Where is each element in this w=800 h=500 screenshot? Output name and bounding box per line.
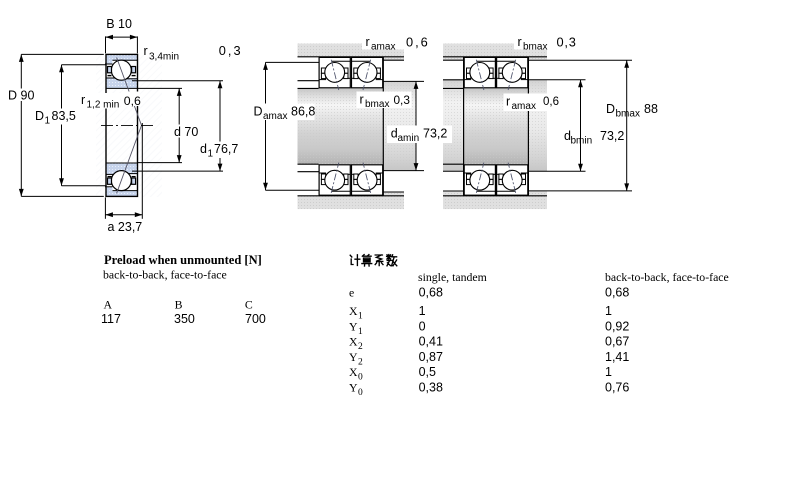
svg-text:1: 1 (358, 327, 363, 337)
svg-text:0,76: 0,76 (605, 381, 629, 395)
svg-text:0,3: 0,3 (219, 43, 243, 58)
svg-text:A: A (104, 298, 113, 312)
svg-text:r: r (360, 93, 364, 107)
svg-text:X: X (349, 335, 358, 349)
svg-text:0: 0 (358, 388, 363, 398)
svg-text:0: 0 (358, 373, 363, 383)
svg-text:0,67: 0,67 (605, 335, 629, 349)
svg-text:117: 117 (101, 312, 121, 326)
svg-text:bmin: bmin (571, 136, 593, 147)
svg-text:0,3: 0,3 (394, 93, 411, 107)
svg-text:Y: Y (349, 319, 358, 333)
svg-text:D: D (606, 102, 615, 116)
svg-text:bmax: bmax (365, 99, 389, 110)
svg-text:back-to-back, face-to-face: back-to-back, face-to-face (103, 268, 227, 282)
svg-text:1: 1 (208, 149, 214, 160)
svg-text:r: r (518, 35, 522, 49)
svg-text:D 90: D 90 (8, 89, 34, 103)
svg-text:0,68: 0,68 (605, 286, 629, 300)
svg-text:r: r (81, 93, 85, 107)
svg-text:amax: amax (512, 101, 536, 112)
svg-text:0,3: 0,3 (557, 35, 577, 50)
svg-text:1: 1 (358, 312, 363, 322)
svg-text:0,6: 0,6 (124, 94, 141, 108)
svg-text:1: 1 (605, 365, 612, 379)
svg-text:86,8: 86,8 (291, 105, 315, 119)
svg-text:B 10: B 10 (106, 17, 132, 31)
svg-text:73,2: 73,2 (600, 129, 624, 143)
svg-text:0,41: 0,41 (419, 335, 443, 349)
svg-text:a 23,7: a 23,7 (108, 220, 143, 234)
svg-text:76,7: 76,7 (214, 142, 238, 156)
svg-text:2: 2 (358, 342, 363, 352)
svg-text:700: 700 (245, 312, 266, 326)
svg-text:back-to-back, face-to-face: back-to-back, face-to-face (605, 270, 729, 284)
svg-text:D: D (254, 105, 263, 119)
svg-text:bmax: bmax (523, 42, 547, 53)
svg-text:amin: amin (398, 133, 420, 144)
svg-text:r: r (366, 35, 370, 49)
svg-text:1: 1 (605, 304, 612, 318)
svg-text:Y: Y (349, 381, 358, 395)
svg-text:C: C (245, 298, 253, 312)
svg-text:d 70: d 70 (174, 125, 198, 139)
svg-text:1,2 min: 1,2 min (87, 100, 120, 111)
svg-text:amax: amax (263, 111, 287, 122)
svg-text:0,6: 0,6 (543, 96, 559, 108)
svg-text:Preload when unmounted [N]: Preload when unmounted [N] (104, 253, 262, 267)
svg-text:73,2: 73,2 (423, 127, 447, 141)
svg-text:1: 1 (419, 304, 426, 318)
svg-text:0,5: 0,5 (419, 365, 436, 379)
svg-text:Y: Y (349, 350, 358, 364)
svg-text:350: 350 (174, 312, 195, 326)
svg-text:83,5: 83,5 (52, 109, 76, 123)
svg-text:X: X (349, 365, 358, 379)
svg-text:0,6: 0,6 (406, 35, 430, 50)
svg-text:r: r (506, 95, 510, 109)
svg-text:0,38: 0,38 (419, 381, 443, 395)
svg-text:bmax: bmax (616, 109, 640, 120)
svg-text:0,92: 0,92 (605, 319, 629, 333)
svg-text:D: D (35, 109, 44, 123)
svg-text:amax: amax (371, 42, 395, 53)
svg-text:0,68: 0,68 (419, 286, 443, 300)
svg-text:3,4min: 3,4min (149, 52, 179, 63)
svg-text:d: d (200, 142, 207, 156)
svg-text:X: X (349, 304, 358, 318)
svg-text:B: B (175, 298, 183, 312)
svg-text:r: r (144, 44, 148, 58)
svg-text:1: 1 (45, 116, 51, 127)
svg-text:1,41: 1,41 (605, 350, 629, 364)
svg-text:88: 88 (644, 102, 658, 116)
svg-text:0,87: 0,87 (419, 350, 443, 364)
svg-text:2: 2 (358, 357, 363, 367)
svg-text:0: 0 (419, 319, 426, 333)
svg-text:e: e (349, 286, 354, 300)
svg-text:single, tandem: single, tandem (418, 270, 487, 284)
